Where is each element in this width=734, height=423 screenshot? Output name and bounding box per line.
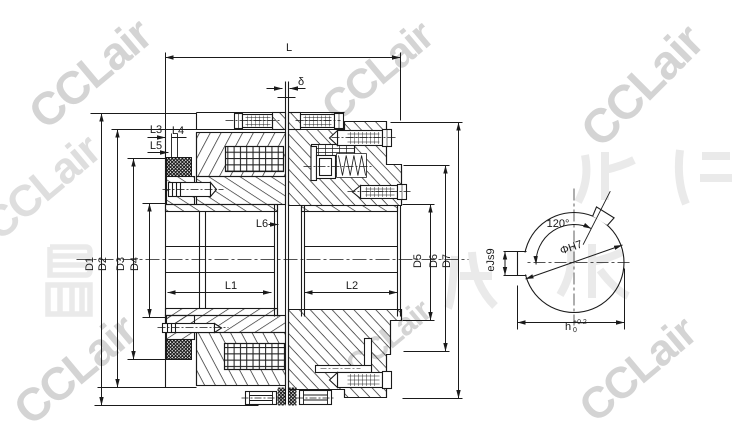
svg-text:L3: L3: [150, 124, 162, 136]
svg-text:D6: D6: [428, 254, 440, 268]
svg-text:D2: D2: [97, 257, 109, 271]
svg-text:CCLair: CCLair: [4, 303, 147, 423]
svg-text:120°: 120°: [547, 218, 570, 230]
svg-text:L: L: [286, 42, 292, 54]
svg-text:eJs9: eJs9: [485, 248, 497, 271]
svg-text:L4: L4: [172, 125, 184, 137]
svg-text:0: 0: [573, 327, 577, 334]
svg-text:D1: D1: [84, 257, 96, 271]
svg-text:h: h: [565, 321, 571, 333]
svg-text:CCLair: CCLair: [0, 124, 110, 249]
svg-text:L6: L6: [256, 218, 268, 230]
svg-text:L1: L1: [225, 280, 237, 292]
svg-text:CCLair: CCLair: [570, 306, 706, 423]
svg-text:+0.2: +0.2: [573, 319, 587, 326]
svg-text:L5: L5: [150, 140, 162, 152]
svg-text:D5: D5: [412, 254, 424, 268]
svg-text:D4: D4: [129, 257, 141, 271]
svg-text:D7: D7: [441, 254, 453, 268]
svg-text:D3: D3: [115, 257, 127, 271]
svg-text:CCLair: CCLair: [19, 7, 162, 139]
svg-text:CCLair: CCLair: [571, 15, 714, 158]
svg-text:L2: L2: [346, 280, 358, 292]
svg-text:δ: δ: [298, 76, 304, 88]
